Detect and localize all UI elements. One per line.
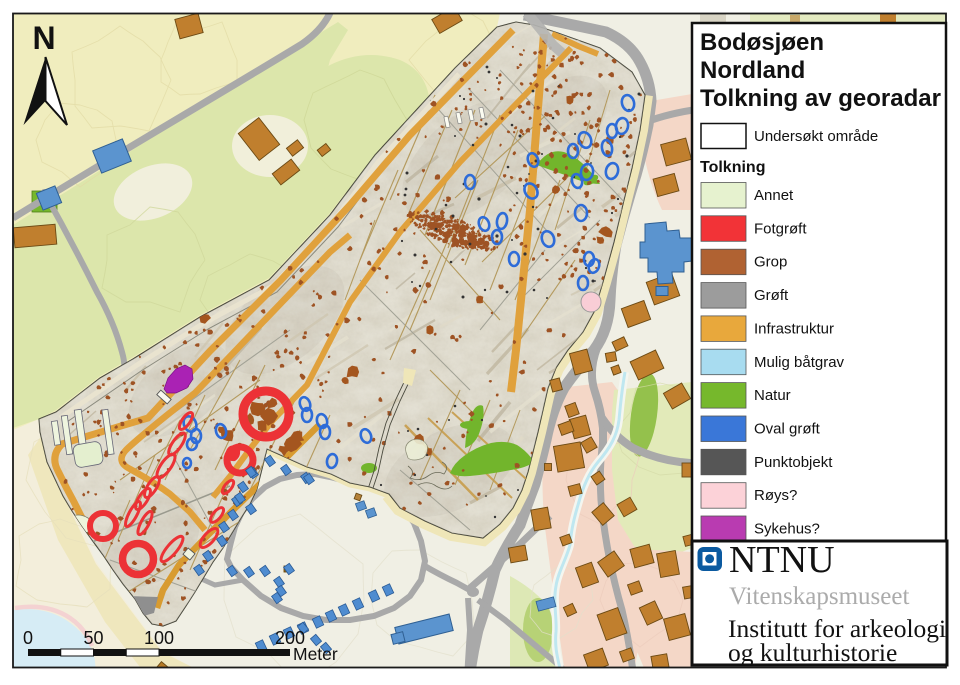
- svg-text:Meter: Meter: [293, 644, 338, 664]
- svg-text:50: 50: [83, 628, 103, 648]
- svg-text:Grøft: Grøft: [754, 287, 789, 304]
- svg-text:N: N: [32, 20, 55, 56]
- svg-text:NTNU: NTNU: [729, 539, 835, 581]
- svg-text:Natur: Natur: [754, 387, 791, 404]
- svg-text:Infrastruktur: Infrastruktur: [754, 320, 834, 337]
- svg-text:100: 100: [144, 628, 174, 648]
- svg-text:Tolkning: Tolkning: [700, 159, 765, 176]
- svg-text:Nordland: Nordland: [700, 57, 805, 84]
- svg-text:Røys?: Røys?: [754, 487, 797, 504]
- svg-text:Bodøsjøen: Bodøsjøen: [700, 29, 824, 56]
- svg-text:Vitenskapsmuseet: Vitenskapsmuseet: [729, 583, 909, 610]
- svg-text:Undersøkt område: Undersøkt område: [754, 128, 878, 145]
- svg-text:Annet: Annet: [754, 187, 794, 204]
- svg-text:Mulig båtgrav: Mulig båtgrav: [754, 354, 845, 371]
- svg-text:Oval grøft: Oval grøft: [754, 421, 821, 438]
- svg-text:0: 0: [23, 628, 33, 648]
- svg-text:Punktobjekt: Punktobjekt: [754, 454, 833, 471]
- svg-text:Sykehus?: Sykehus?: [754, 521, 820, 538]
- svg-text:Tolkning av georadar: Tolkning av georadar: [700, 85, 941, 112]
- svg-text:og kulturhistorie: og kulturhistorie: [728, 638, 897, 667]
- svg-text:Grop: Grop: [754, 254, 787, 271]
- svg-text:Fotgrøft: Fotgrøft: [754, 220, 807, 237]
